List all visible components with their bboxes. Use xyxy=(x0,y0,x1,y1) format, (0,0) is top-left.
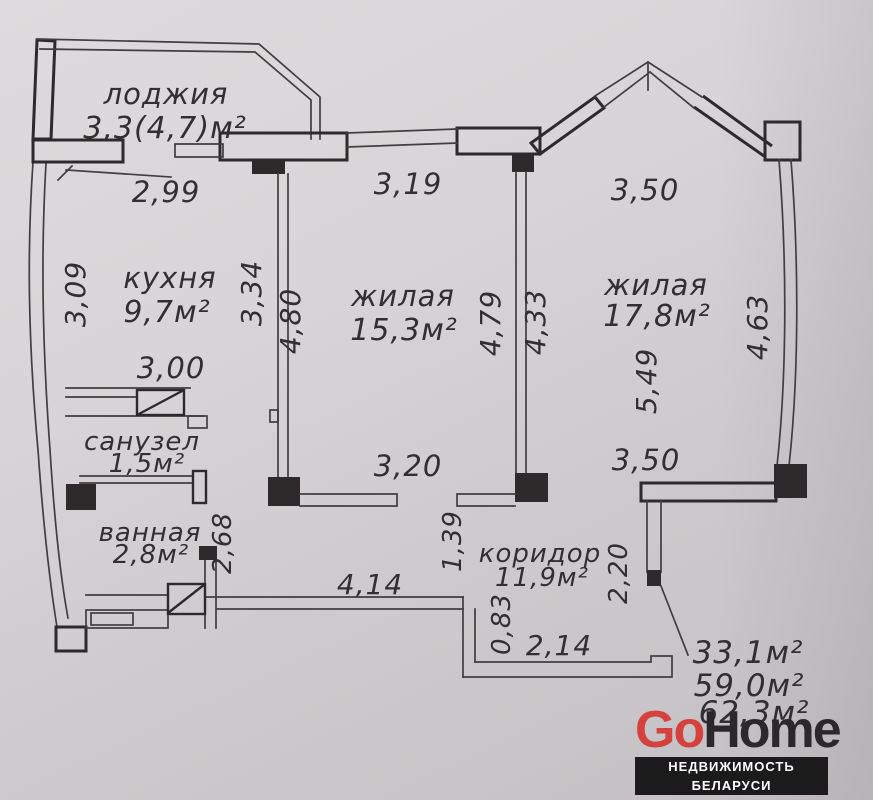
room-label-loggia: лоджия xyxy=(103,77,229,111)
dim-room2-mid: 5,49 xyxy=(630,348,663,414)
dim-entry-bottom: 2,14 xyxy=(526,629,592,662)
floorplan-page: лоджия 3,3(4,7)м² кухня 9,7м² жилая 15,3… xyxy=(0,0,873,800)
logo-go-text: Go xyxy=(635,701,703,759)
dim-room1-top: 3,19 xyxy=(374,167,443,201)
gohome-logo: GoHome НЕДВИЖИМОСТЬ БЕЛАРУСИ xyxy=(635,704,831,795)
dim-kitchen-top: 2,99 xyxy=(132,175,201,209)
dim-corridor-bottom: 4,14 xyxy=(337,568,403,601)
windows xyxy=(175,62,702,157)
dim-corridor-near-room1: 1,39 xyxy=(438,510,468,572)
vent-shaft-kitchen xyxy=(137,390,184,415)
window-room1 xyxy=(347,129,457,147)
dim-corridor-step: 0,83 xyxy=(487,593,517,655)
total-living-area: 33,1м² xyxy=(693,635,804,671)
dim-room1-left: 4,80 xyxy=(274,288,307,354)
dim-kitchen-right: 3,34 xyxy=(235,260,268,326)
vent-shaft-bathroom xyxy=(168,584,205,614)
entry-door-swing xyxy=(661,586,688,655)
room-area-corridor: 11,9м² xyxy=(495,563,589,593)
room-area-wc: 1,5м² xyxy=(109,449,185,479)
room-labels: лоджия 3,3(4,7)м² кухня 9,7м² жилая 15,3… xyxy=(83,77,710,593)
bay-window-right xyxy=(648,62,702,108)
door-swings xyxy=(661,586,688,655)
bay-window-left xyxy=(595,62,650,107)
room-area-bath: 2,8м² xyxy=(113,540,189,570)
room-area-loggia: 3,3(4,7)м² xyxy=(83,111,247,146)
room-label-kitchen: кухня xyxy=(123,261,216,295)
dim-kitchen-left: 3,09 xyxy=(59,261,92,327)
dim-bath-right: 2,68 xyxy=(208,512,238,574)
dim-room2-right: 4,63 xyxy=(741,294,774,360)
dim-room1-right: 4,79 xyxy=(474,290,507,356)
room-label-living2: жилая xyxy=(603,268,708,302)
room-area-kitchen: 9,7м² xyxy=(123,295,210,330)
room-area-living2: 17,8м² xyxy=(603,299,710,334)
dim-room2-bottom: 3,50 xyxy=(612,443,681,477)
room-area-living1: 15,3м² xyxy=(350,313,457,348)
dim-kitchen-bottom: 3,00 xyxy=(137,351,206,385)
dim-room1-bottom: 3,20 xyxy=(374,449,443,483)
gohome-wordmark: GoHome xyxy=(635,704,831,756)
logo-tagline: НЕДВИЖИМОСТЬ БЕЛАРУСИ xyxy=(635,757,828,795)
dim-room2-left: 4,33 xyxy=(519,289,552,355)
logo-home-text: Home xyxy=(703,701,839,759)
room-label-living1: жилая xyxy=(350,279,455,313)
dim-entry-right: 2,20 xyxy=(604,542,634,604)
dim-room2-top: 3,50 xyxy=(611,173,680,207)
floorplan-svg: лоджия 3,3(4,7)м² кухня 9,7м² жилая 15,3… xyxy=(0,0,873,800)
